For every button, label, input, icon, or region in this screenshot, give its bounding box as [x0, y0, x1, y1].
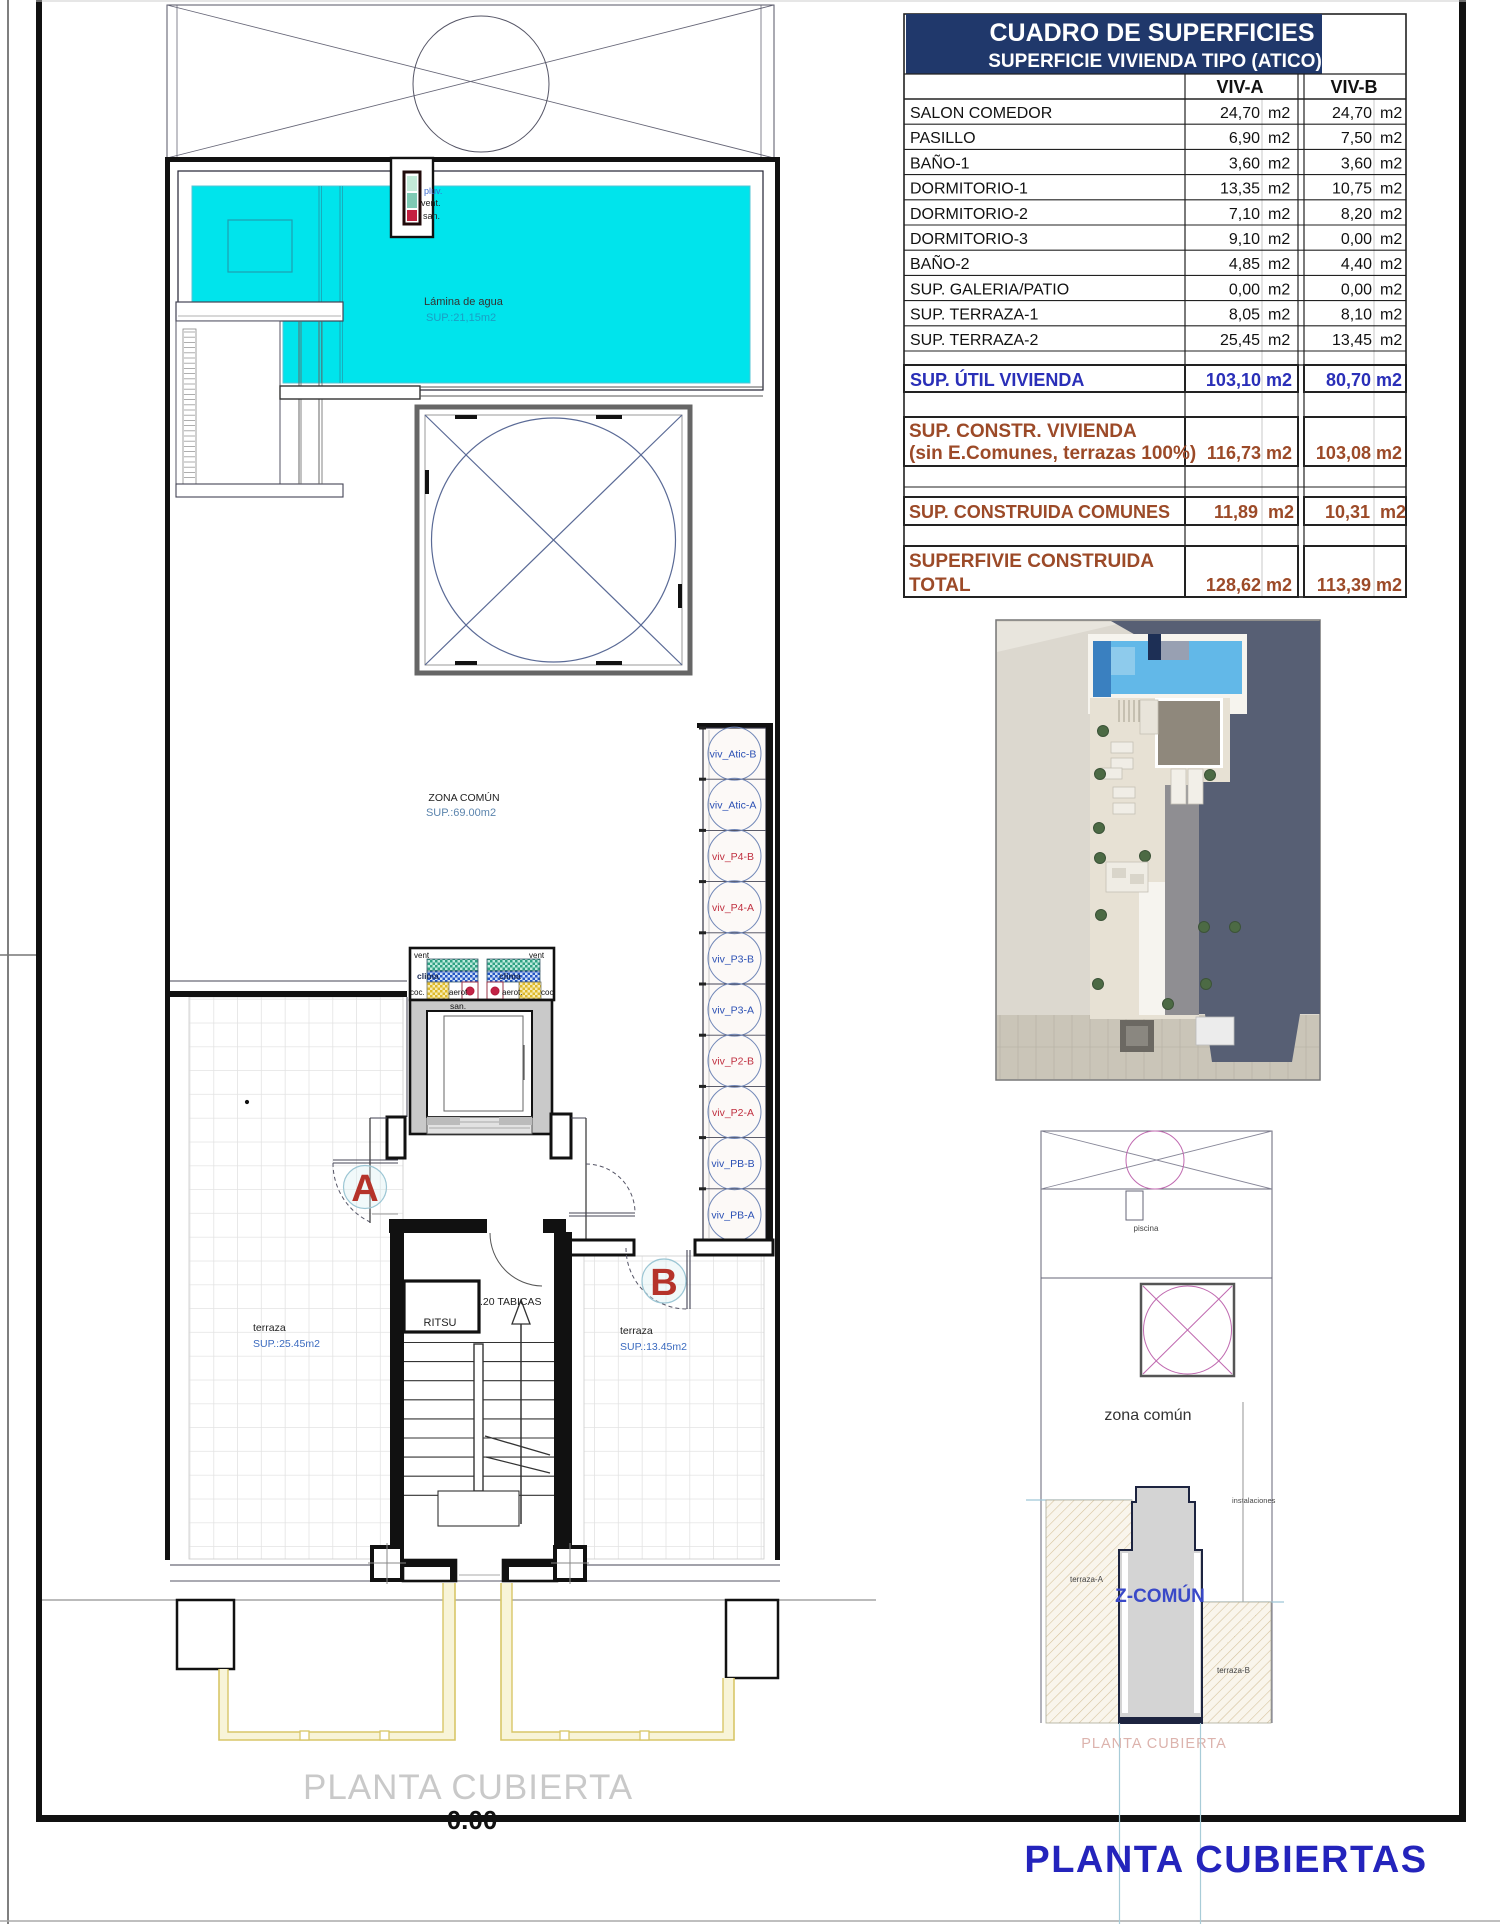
svg-text:BAÑO-2: BAÑO-2: [910, 253, 970, 273]
svg-text:san.: san.: [450, 1001, 466, 1011]
svg-text:m2: m2: [1380, 231, 1402, 248]
svg-text:128,62 m2: 128,62 m2: [1206, 575, 1292, 595]
svg-text:coc.: coc.: [410, 988, 425, 997]
svg-text:m2: m2: [1380, 502, 1406, 522]
svg-text:m2: m2: [1380, 307, 1402, 324]
svg-text:m2: m2: [1268, 105, 1290, 122]
svg-text:13,35: 13,35: [1220, 181, 1260, 198]
svg-text:Lámina de agua: Lámina de agua: [424, 296, 504, 308]
svg-text:SUP. CONSTRUIDA COMUNES: SUP. CONSTRUIDA COMUNES: [909, 502, 1170, 522]
svg-text:viv_P3-A: viv_P3-A: [712, 1005, 754, 1017]
svg-text:SUP.:25.45m2: SUP.:25.45m2: [253, 1338, 320, 1350]
svg-text:DORMITORIO-3: DORMITORIO-3: [910, 231, 1028, 248]
svg-text:10,75: 10,75: [1332, 181, 1372, 198]
svg-text:.20 TABICAS: .20 TABICAS: [480, 1296, 541, 1308]
svg-text:RITSU: RITSU: [424, 1317, 457, 1329]
svg-text:terraza: terraza: [620, 1325, 653, 1337]
svg-text:SUP. GALERIA/PATIO: SUP. GALERIA/PATIO: [910, 281, 1069, 298]
svg-text:piscina: piscina: [1134, 1224, 1159, 1233]
svg-text:PLANTA CUBIERTAS: PLANTA CUBIERTAS: [1024, 1839, 1427, 1881]
svg-text:103,08 m2: 103,08 m2: [1316, 443, 1402, 463]
svg-text:m2: m2: [1380, 256, 1402, 273]
svg-text:SUP.:13.45m2: SUP.:13.45m2: [620, 1341, 687, 1353]
svg-text:aerot: aerot: [449, 988, 468, 997]
svg-text:m2: m2: [1268, 155, 1290, 172]
svg-text:m2: m2: [1268, 206, 1290, 223]
svg-text:viv_P2-A: viv_P2-A: [712, 1107, 754, 1119]
svg-text:0,00: 0,00: [1229, 281, 1260, 298]
svg-text:(sin E.Comunes, terrazas 100%): (sin E.Comunes, terrazas 100%): [909, 443, 1196, 464]
svg-text:116,73 m2: 116,73 m2: [1207, 443, 1292, 463]
svg-text:terraza-A: terraza-A: [1070, 1575, 1104, 1584]
svg-text:m2: m2: [1380, 206, 1402, 223]
svg-text:SUPERFIVIE CONSTRUIDA: SUPERFIVIE CONSTRUIDA: [909, 551, 1154, 572]
svg-text:SUP. ÚTIL VIVIENDA: SUP. ÚTIL VIVIENDA: [910, 369, 1084, 390]
svg-text:A: A: [351, 1168, 378, 1210]
svg-text:TOTAL: TOTAL: [909, 575, 971, 596]
svg-text:vent.: vent.: [421, 198, 441, 208]
svg-text:m2: m2: [1268, 181, 1290, 198]
svg-text:0,00: 0,00: [1341, 231, 1372, 248]
svg-text:24,70: 24,70: [1332, 105, 1372, 122]
svg-text:0.00: 0.00: [447, 1805, 498, 1835]
svg-text:m2: m2: [1268, 130, 1290, 147]
svg-text:clima: clima: [417, 971, 439, 981]
svg-text:viv_P3-B: viv_P3-B: [712, 953, 754, 965]
svg-text:m2: m2: [1268, 256, 1290, 273]
svg-text:8,20: 8,20: [1341, 206, 1372, 223]
svg-text:103,10 m2: 103,10 m2: [1206, 370, 1292, 390]
svg-text:10,31: 10,31: [1325, 502, 1370, 522]
svg-text:PASILLO: PASILLO: [910, 130, 976, 147]
svg-text:SUP. CONSTR. VIVIENDA: SUP. CONSTR. VIVIENDA: [909, 421, 1137, 442]
svg-text:8,05: 8,05: [1229, 307, 1260, 324]
svg-text:4,40: 4,40: [1341, 256, 1372, 273]
svg-text:aerot.: aerot.: [502, 988, 522, 997]
svg-text:clima: clima: [499, 971, 521, 981]
svg-text:terraza-B: terraza-B: [1217, 1666, 1250, 1675]
svg-text:m2: m2: [1268, 281, 1290, 298]
svg-text:viv_PB-A: viv_PB-A: [711, 1209, 754, 1221]
svg-text:13,45: 13,45: [1332, 332, 1372, 349]
svg-text:24,70: 24,70: [1220, 105, 1260, 122]
svg-text:7,50: 7,50: [1341, 130, 1372, 147]
svg-text:SUP.:21,15m2: SUP.:21,15m2: [426, 312, 496, 324]
svg-text:PLANTA CUBIERTA: PLANTA CUBIERTA: [1081, 1736, 1227, 1752]
svg-text:B: B: [650, 1262, 677, 1304]
svg-text:Z-COMÚN: Z-COMÚN: [1115, 1585, 1205, 1607]
svg-text:DORMITORIO-2: DORMITORIO-2: [910, 206, 1028, 223]
svg-text:3,60: 3,60: [1341, 155, 1372, 172]
svg-text:viv_Atic-A: viv_Atic-A: [710, 800, 757, 812]
svg-text:coc.: coc.: [541, 988, 556, 997]
svg-text:VIV-A: VIV-A: [1216, 77, 1263, 97]
svg-text:viv_P4-B: viv_P4-B: [712, 851, 754, 863]
svg-text:SUP. TERRAZA-2: SUP. TERRAZA-2: [910, 332, 1038, 349]
svg-text:m2: m2: [1380, 155, 1402, 172]
svg-text:6,90: 6,90: [1229, 130, 1260, 147]
svg-text:m2: m2: [1380, 281, 1402, 298]
svg-text:8,10: 8,10: [1341, 307, 1372, 324]
svg-text:m2: m2: [1268, 307, 1290, 324]
svg-text:113,39 m2: 113,39 m2: [1317, 575, 1402, 595]
svg-text:m2: m2: [1380, 332, 1402, 349]
svg-text:CUADRO DE SUPERFICIES: CUADRO DE SUPERFICIES: [989, 19, 1314, 47]
svg-text:7,10: 7,10: [1229, 206, 1260, 223]
svg-text:m2: m2: [1380, 130, 1402, 147]
svg-text:m2: m2: [1380, 181, 1402, 198]
svg-text:0,00: 0,00: [1341, 281, 1372, 298]
svg-text:VIV-B: VIV-B: [1330, 77, 1377, 97]
svg-text:3,60: 3,60: [1229, 155, 1260, 172]
svg-text:4,85: 4,85: [1229, 256, 1260, 273]
svg-text:m2: m2: [1268, 502, 1294, 522]
svg-text:terraza: terraza: [253, 1322, 286, 1334]
svg-text:DORMITORIO-1: DORMITORIO-1: [910, 181, 1028, 198]
svg-text:instalaciones: instalaciones: [1232, 1496, 1276, 1505]
svg-text:11,89: 11,89: [1214, 502, 1258, 522]
svg-text:vent: vent: [529, 951, 545, 960]
svg-text:SUP. TERRAZA-1: SUP. TERRAZA-1: [910, 307, 1038, 324]
svg-text:25,45: 25,45: [1220, 332, 1260, 349]
svg-text:ZONA COMÚN: ZONA COMÚN: [428, 791, 499, 804]
svg-text:viv_P2-B: viv_P2-B: [712, 1056, 754, 1068]
svg-text:SALON COMEDOR: SALON COMEDOR: [910, 105, 1052, 122]
svg-text:PLANTA CUBIERTA: PLANTA CUBIERTA: [303, 1768, 633, 1807]
svg-text:viv_P4-A: viv_P4-A: [712, 902, 754, 914]
svg-text:m2: m2: [1268, 231, 1290, 248]
svg-text:80,70 m2: 80,70 m2: [1326, 370, 1402, 390]
svg-text:san.: san.: [423, 211, 440, 221]
svg-text:zona común: zona común: [1104, 1407, 1191, 1424]
svg-text:BAÑO-1: BAÑO-1: [910, 152, 970, 172]
svg-text:SUP.:69.00m2: SUP.:69.00m2: [426, 807, 496, 819]
svg-text:viv_PB-B: viv_PB-B: [711, 1158, 754, 1170]
svg-text:9,10: 9,10: [1229, 231, 1260, 248]
svg-text:vent: vent: [414, 951, 430, 960]
svg-text:viv_Atic-B: viv_Atic-B: [710, 749, 757, 761]
svg-text:m2: m2: [1268, 332, 1290, 349]
svg-text:pluv.: pluv.: [424, 186, 442, 196]
svg-text:SUPERFICIE VIVIENDA TIPO (ATI: SUPERFICIE VIVIENDA TIPO (ATICO): [988, 51, 1322, 72]
svg-text:m2: m2: [1380, 105, 1402, 122]
